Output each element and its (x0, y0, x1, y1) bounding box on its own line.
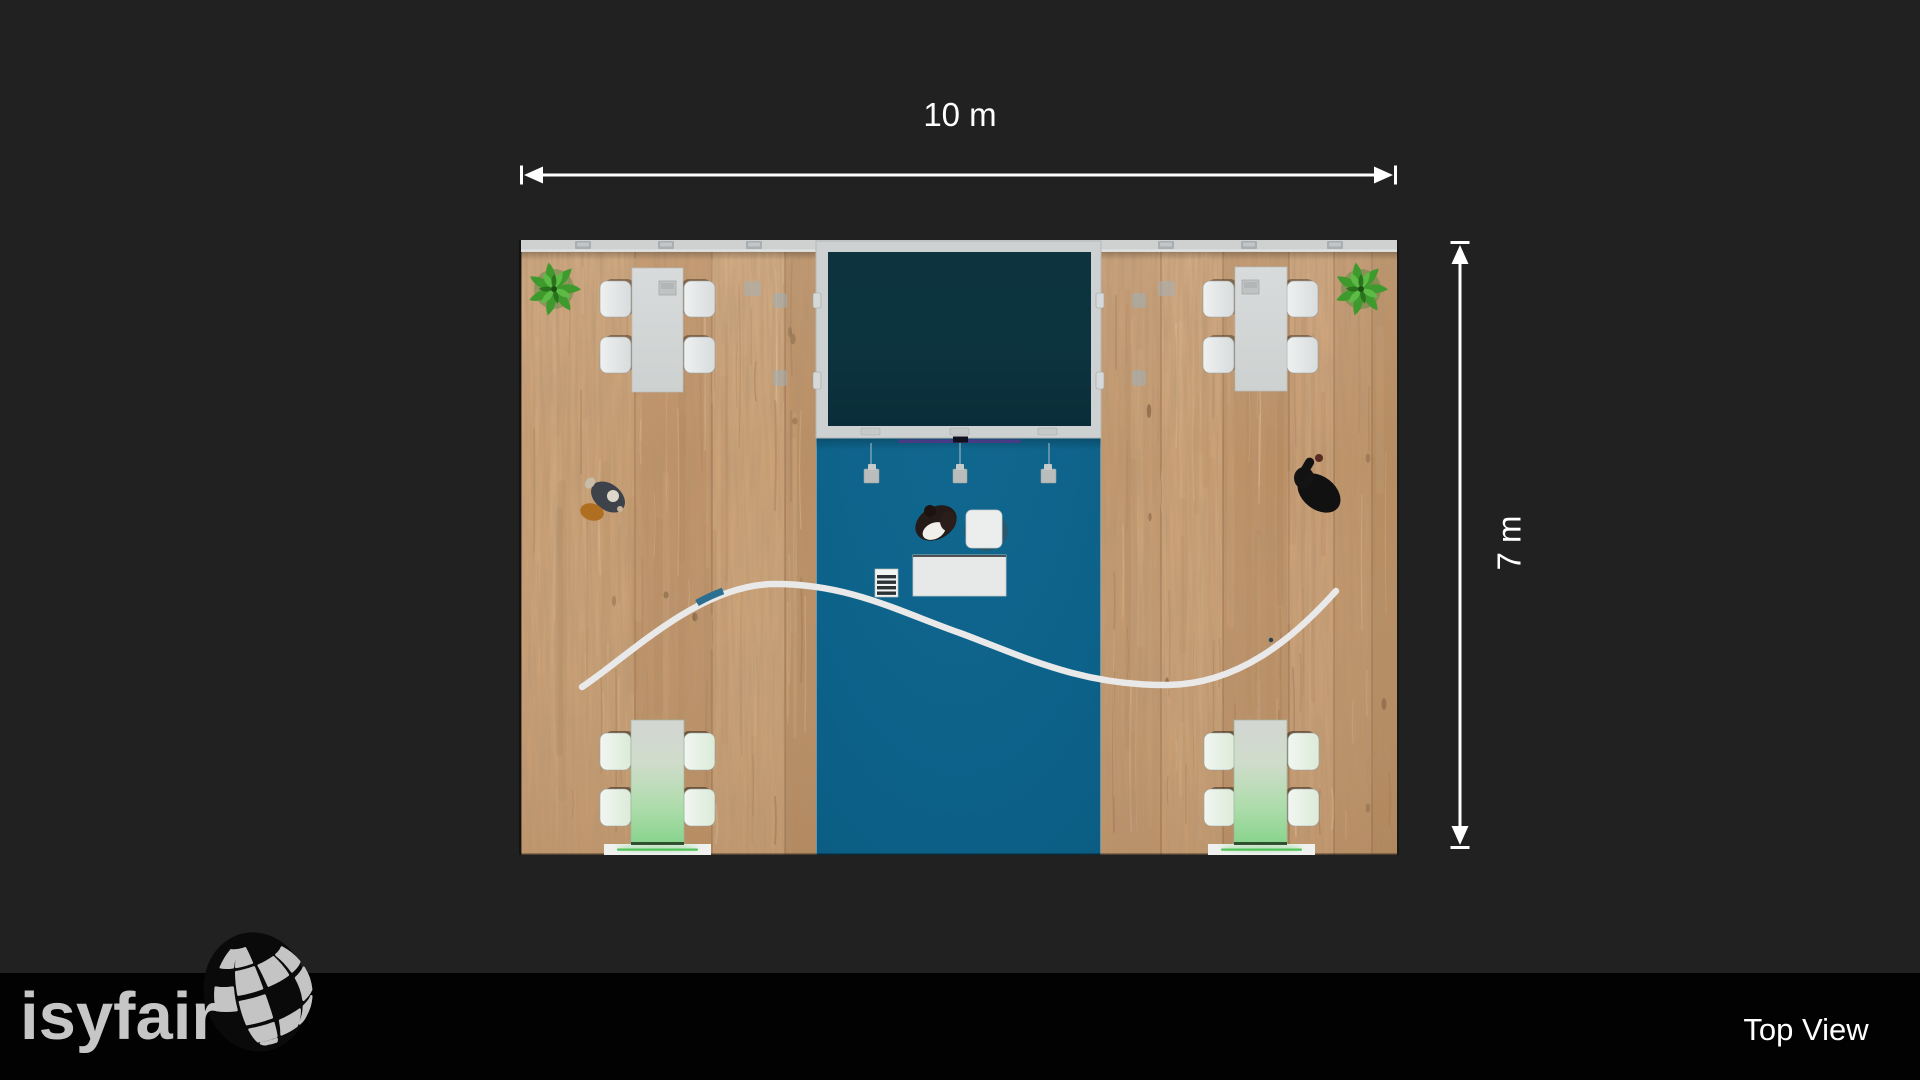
svg-text:7 m: 7 m (1491, 515, 1528, 570)
svg-text:Top View: Top View (1743, 1012, 1869, 1047)
svg-text:10 m: 10 m (923, 96, 996, 133)
svg-text:isyfair: isyfair (20, 979, 217, 1054)
